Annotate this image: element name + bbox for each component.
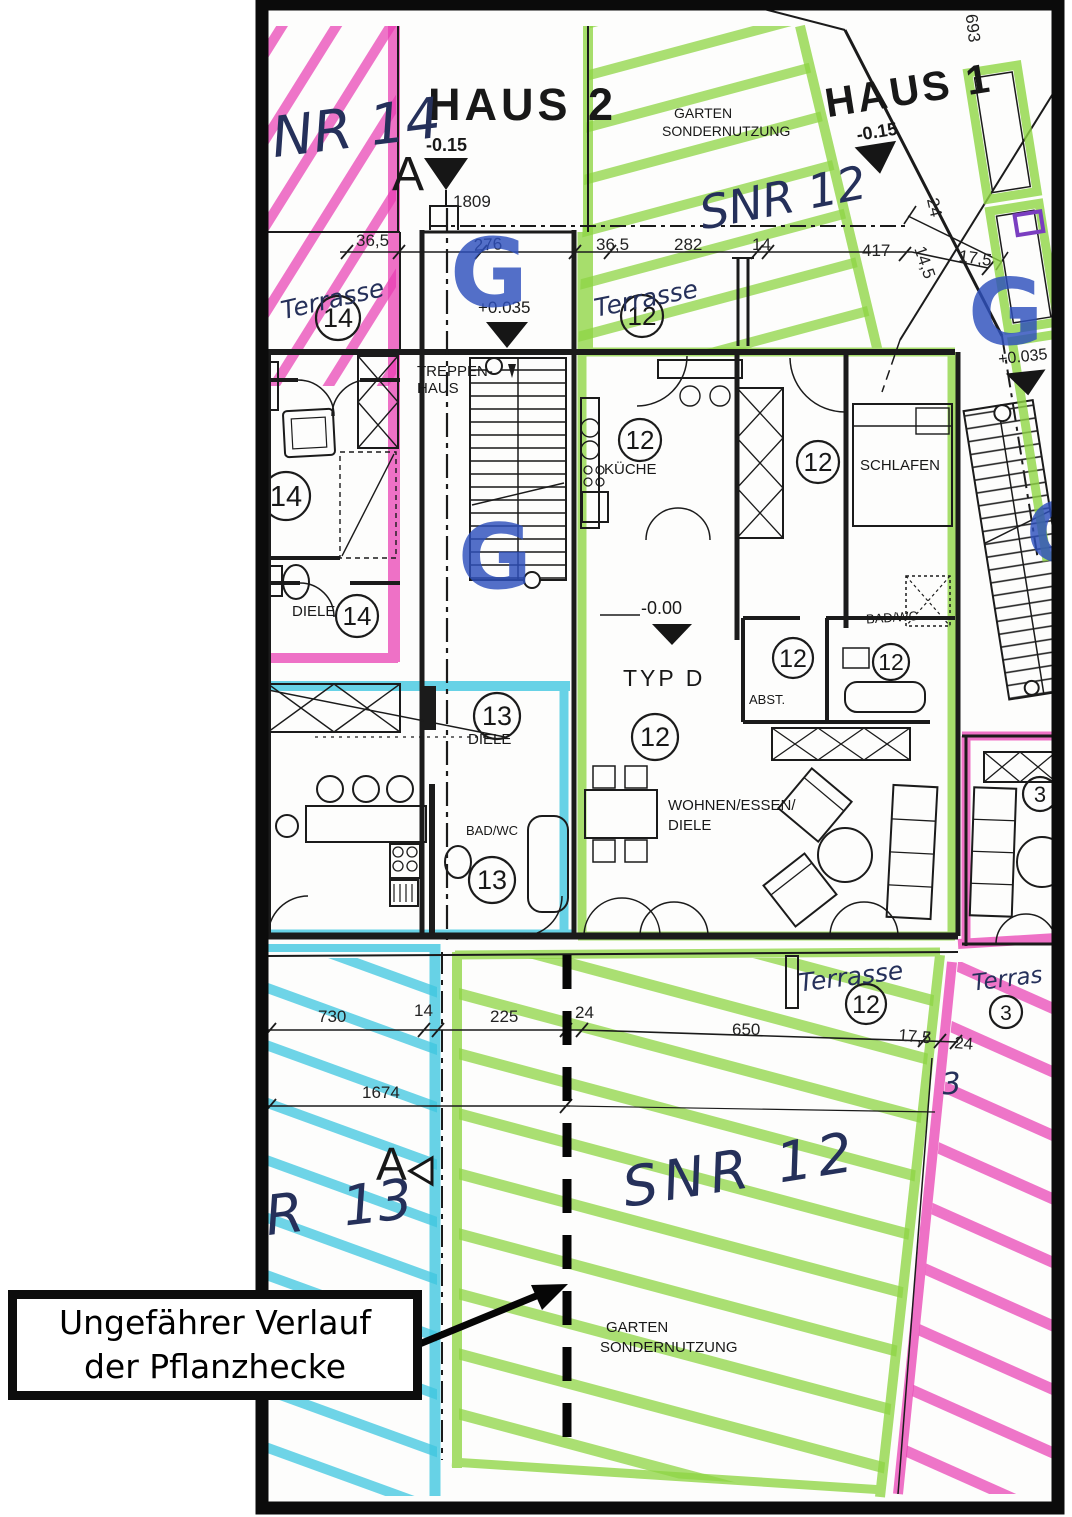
svg-text:13: 13 [482, 701, 512, 731]
label-badwc-13: BAD/WC [466, 823, 518, 838]
svg-text:14: 14 [270, 481, 302, 513]
svg-text:12: 12 [878, 649, 904, 675]
site-plan-page: HAUS 2 HAUS 1 -0.15 GARTEN SONDERNUTZUNG… [0, 0, 1072, 1517]
unit-12-bad: 12 [873, 644, 909, 680]
dim-14-bottom: 14 [414, 1001, 433, 1020]
hand-3: 3 [940, 1066, 962, 1103]
label-wohnen-essen: WOHNEN/ESSEN/ [668, 797, 796, 814]
dim-24-bottom-2: 24 [954, 1033, 975, 1054]
g-stamp-right-edge: G [1026, 484, 1072, 582]
dim-417: 417 [862, 241, 890, 260]
dim-225: 225 [490, 1007, 518, 1026]
label-wohnen-diele: DIELE [668, 817, 711, 834]
label-sondernutzung-top: SONDERNUTZUNG [662, 123, 790, 139]
label-kueche: KÜCHE [604, 460, 657, 478]
svg-text:14: 14 [343, 601, 372, 631]
label-sondernutzung-bottom: SONDERNUTZUNG [600, 1339, 738, 1356]
dim-14-top: 14 [752, 235, 771, 254]
g-stamp-stairs: G [458, 505, 532, 610]
svg-text:12: 12 [852, 991, 880, 1019]
dim-1674: 1674 [362, 1083, 400, 1102]
svg-text:3: 3 [1000, 1002, 1012, 1025]
hedge-annotation-line2: der Pflanzhecke [84, 1345, 346, 1389]
level-minus000: -0.00 [641, 598, 682, 618]
svg-text:12: 12 [640, 722, 670, 752]
label-garten-top: GARTEN [674, 105, 732, 121]
dim-175-bottom: 17,5 [898, 1026, 933, 1048]
hedge-annotation-box: Ungefährer Verlauf der Pflanzhecke [8, 1290, 422, 1400]
svg-text:12: 12 [804, 447, 833, 477]
dim-365-right: 36,5 [596, 235, 629, 254]
label-diele-14: DIELE [292, 603, 335, 620]
green-hatch-snr12-bottom [459, 958, 938, 1492]
g-stamp-haus1: G [968, 259, 1044, 366]
label-abst: ABST. [749, 692, 785, 707]
label-treppenhaus-2: HAUS [417, 380, 459, 397]
dim-24-bottom-1: 24 [575, 1003, 594, 1022]
dim-282: 282 [674, 235, 702, 254]
dim-693: 693 [962, 13, 984, 43]
dim-1809: 1809 [453, 192, 491, 211]
label-garten-bottom: GARTEN [606, 1319, 668, 1336]
dim-365-left: 36,5 [356, 231, 389, 250]
label-diele-13: DIELE [468, 731, 511, 748]
label-haus2: HAUS 2 [428, 79, 617, 130]
dim-730: 730 [318, 1007, 346, 1026]
svg-text:3: 3 [1034, 782, 1046, 807]
svg-text:12: 12 [626, 425, 655, 455]
dim-650: 650 [732, 1020, 760, 1039]
label-schlafen: SCHLAFEN [860, 457, 940, 474]
hedge-annotation-line1: Ungefährer Verlauf [59, 1301, 371, 1345]
svg-text:13: 13 [477, 865, 507, 895]
g-stamp-top: G [450, 219, 528, 329]
svg-text:12: 12 [779, 645, 807, 673]
label-typ-d: TYP D [623, 665, 705, 691]
label-treppenhaus-1: TREPPEN- [417, 363, 493, 380]
